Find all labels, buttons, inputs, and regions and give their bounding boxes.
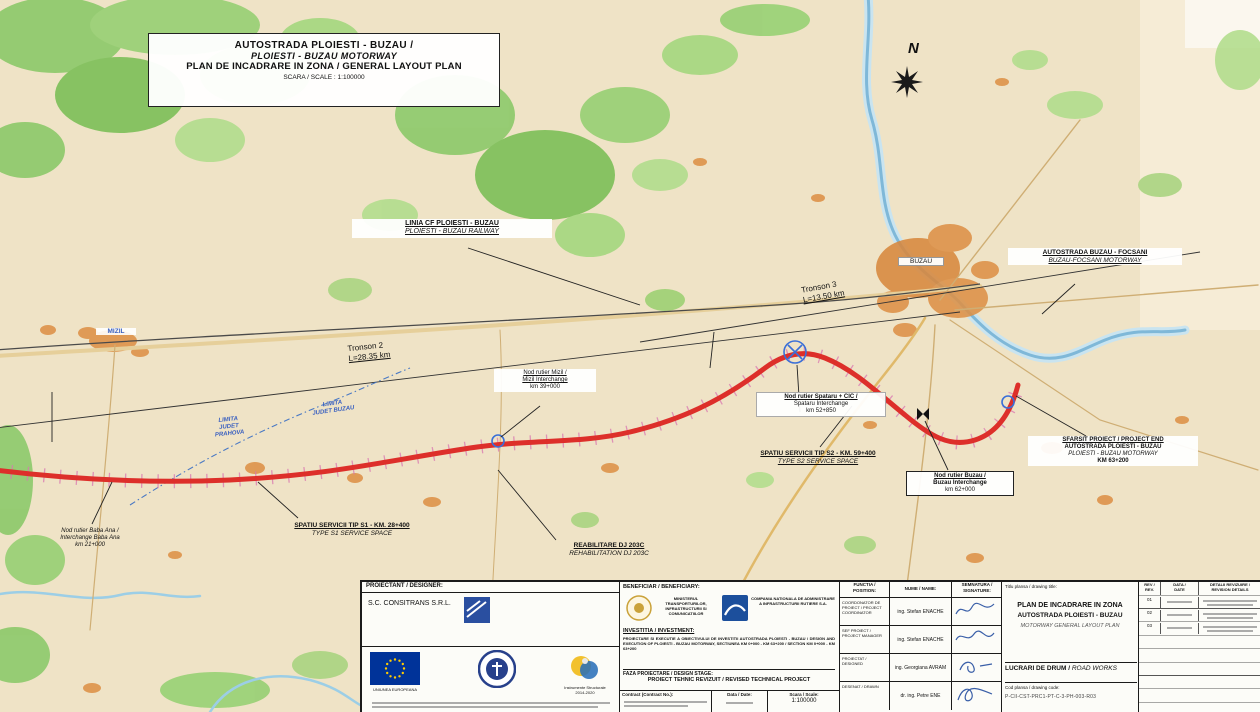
city-label-buzau: BUZAU (898, 257, 944, 266)
callout-railway-ro: LINIA CF PLOIESTI - BUZAU (354, 220, 550, 228)
eu-flag-logo (370, 652, 420, 685)
signature-column-header: SEMNATURA / SIGNATURE: (952, 582, 1002, 598)
date-cell: Data / Date: (712, 690, 768, 712)
drawing-title-line2: AUTOSTRADA PLOIESTI - BUZAU (1004, 612, 1136, 620)
scale-value: 1:100000 (768, 698, 840, 705)
callout-s2-ro: SPATIU SERVICII TIP S2 - KM. 59+400 (728, 450, 908, 458)
name-column-header: NUME / NAME: (890, 582, 952, 598)
callout-buzau-ic-en: Buzau Interchange (909, 480, 1011, 487)
road-works-ro: LUCRARI DE DRUM / (1005, 665, 1070, 672)
revision-date-illegible (1161, 623, 1199, 634)
signature-stroke (952, 654, 998, 678)
sheet-title-box: AUTOSTRADA PLOIESTI - BUZAU / PLOIESTI -… (148, 33, 500, 107)
callout-spataru-km: km 52+850 (759, 408, 883, 415)
signature-row-name: ing. Stefan ENACHE (890, 598, 952, 626)
details-header-2: REVISION DETAILS (1199, 587, 1260, 592)
beneficiary-section: BENEFICIAR / BENEFICIARY: MINISTERUL TRA… (620, 582, 840, 712)
callout-dj203c-en: REHABILITATION DJ 203C (534, 550, 684, 558)
consitrans-logo (464, 597, 490, 623)
structural-instruments-caption: Instrumente Structurale 2014-2020 (558, 685, 612, 695)
revision-table: REV / REV. DATA / DATE DETALII REVIZUIRE… (1138, 582, 1260, 712)
signature-row-position: SEF PROIECT / PROJECT MANAGER (840, 626, 890, 654)
callout-baba-ana-interchange: Nod rutier Baba Ana / Interchange Baba A… (28, 527, 152, 550)
callout-end-line2: AUTOSTRADA PLOIESTI - BUZAU (1030, 444, 1196, 451)
structural-instruments-logo (568, 652, 602, 684)
callout-s1-en: TYPE S1 SERVICE SPACE (270, 530, 434, 538)
date-column-header: DATA / DATE (1161, 582, 1199, 595)
drawing-code-value: P-CII-CST-PRC1-PT-C-3-PH-003-R03 (1005, 694, 1137, 700)
city-label-mizil: MIZIL (96, 328, 136, 335)
designer-section: PROIECTANT / DESIGNER: S.C. CONSITRANS S… (362, 582, 620, 712)
cnair-logo (722, 595, 748, 621)
signature-row-name: dr. ing. Petre ENE (890, 682, 952, 710)
illegible-microtext-line (372, 702, 610, 704)
date-label: Data / Date: (712, 691, 767, 698)
callout-buzau-ic-km: km 62+000 (909, 487, 1011, 494)
details-column-header: DETALII REVIZUIRE / REVISION DETAILS (1199, 582, 1260, 595)
callout-mizil-en: Mizil Interchange (496, 377, 594, 384)
callout-focsani-en: BUZAU-FOCSANI MOTORWAY (1010, 257, 1180, 265)
callout-dj203c: REABILITARE DJ 203C REHABILITATION DJ 20… (532, 541, 686, 558)
callout-baba-ro: Nod rutier Baba Ana / (30, 528, 150, 535)
investment-label: INVESTITIA / INVESTMENT: (623, 628, 823, 635)
date-header-2: DATE (1161, 587, 1198, 592)
sheet-title-scale: SCARA / SCALE : 1:100000 (149, 74, 499, 81)
callout-mizil-interchange: Nod rutier Mizil / Mizil Interchange km … (494, 369, 596, 392)
investment-text: PROIECTARE SI EXECUTIE A OBIECTIVULUI DE… (623, 636, 835, 666)
signature-row-signature (952, 682, 1002, 710)
revision-number: 02 (1139, 610, 1161, 621)
illegible-date-value (726, 702, 754, 704)
signature-stroke (952, 682, 998, 706)
revision-number: 01 (1139, 597, 1161, 608)
callout-end-line1: SFARSIT PROIECT / PROJECT END (1030, 437, 1196, 444)
revision-number: 03 (1139, 623, 1161, 634)
callout-baba-km: km 21+000 (30, 542, 150, 549)
signature-header-line2: SIGNATURE: (952, 588, 1002, 594)
beneficiary-header: BENEFICIAR / BENEFICIARY: (623, 584, 823, 591)
revision-date-illegible (1161, 597, 1199, 608)
romanian-government-logo (478, 650, 516, 688)
sheet-title-line3: PLAN DE INCADRARE IN ZONA / GENERAL LAYO… (149, 61, 499, 72)
scanned-map-sheet: AUTOSTRADA PLOIESTI - BUZAU / PLOIESTI -… (0, 0, 1260, 712)
position-column-header: FUNCTIA / POSITION: (840, 582, 890, 598)
callout-mizil-km: km 39+000 (496, 384, 594, 391)
signature-row-signature (952, 626, 1002, 654)
callout-spataru-interchange: Nod rutier Spataru + CIC / Spataru Inter… (756, 392, 886, 417)
cnair-text: COMPANIA NATIONALA DE ADMINISTRARE A INF… (750, 596, 836, 606)
callout-focsani-motorway: AUTOSTRADA BUZAU - FOCSANI BUZAU-FOCSANI… (1008, 248, 1182, 265)
scale-label: Scara / Scale: (768, 691, 840, 698)
section-label-tronson2: Tronson 2 L=28.35 km (347, 340, 391, 365)
signature-row-position: DESENAT / DRAWN (840, 682, 890, 710)
callout-s2-en: TYPE S2 SERVICE SPACE (728, 458, 908, 466)
callout-end-line3: PLOIESTI - BUZAU MOTORWAY (1030, 451, 1196, 458)
signature-stroke (952, 598, 998, 622)
road-works-label: LUCRARI DE DRUM / ROAD WORKS (1005, 662, 1137, 673)
designer-microtext (368, 700, 614, 710)
callout-spataru-ro: Nod rutier Spataru + CIC / (759, 394, 883, 401)
contract-label: Contract (Contract No.): (620, 691, 711, 699)
rev-header-2: REV. (1139, 587, 1160, 592)
signature-row-position: COORDONATOR DE PROIECT / PROJECT COORDIN… (840, 598, 890, 626)
transport-ministry-text: MINISTERUL TRANSPORTURILOR, INFRASTRUCTU… (654, 596, 718, 616)
design-stage-value: PROIECT TEHNIC REVIZUIT / REVISED TECHNI… (623, 677, 835, 684)
callout-service-area-s2: SPATIU SERVICII TIP S2 - KM. 59+400 TYPE… (726, 449, 910, 466)
drawing-code-label: Cod plansa / drawing code: (1005, 682, 1137, 691)
illegible-contract-value (624, 701, 707, 703)
callout-railway-en: PLOIESTI - BUZAU RAILWAY (354, 228, 550, 236)
callout-railway: LINIA CF PLOIESTI - BUZAU PLOIESTI - BUZ… (352, 219, 552, 238)
signature-row-position: PROIECTAT / DESIGNED (840, 654, 890, 682)
drawing-title-label: Titlu plansa / drawing title: (1005, 584, 1135, 590)
callout-end-km: KM 63+200 (1030, 458, 1196, 465)
transport-ministry-logo (626, 595, 652, 621)
callout-s1-ro: SPATIU SERVICII TIP S1 - KM. 28+400 (270, 522, 434, 530)
sheet-title-line2: PLOIESTI - BUZAU MOTORWAY (149, 51, 499, 61)
road-works-en: ROAD WORKS (1072, 665, 1117, 672)
callout-project-end: SFARSIT PROIECT / PROJECT END AUTOSTRADA… (1028, 436, 1198, 466)
revision-date-illegible (1161, 610, 1199, 621)
callout-baba-en: Interchange Baba Ana (30, 535, 150, 542)
illegible-contract-value (624, 705, 688, 707)
illegible-microtext-line (372, 706, 598, 708)
title-block: PROIECTANT / DESIGNER: S.C. CONSITRANS S… (360, 580, 1260, 712)
designer-divider (362, 646, 619, 647)
is-caption-line2: 2014-2020 (558, 690, 612, 695)
callout-mizil-ro: Nod rutier Mizil / (496, 370, 594, 377)
callout-service-area-s1: SPATIU SERVICII TIP S1 - KM. 28+400 TYPE… (268, 521, 436, 538)
drawing-section: Titlu plansa / drawing title: PLAN DE IN… (1002, 582, 1260, 712)
designer-header: PROIECTANT / DESIGNER: (362, 582, 619, 593)
callout-focsani-ro: AUTOSTRADA BUZAU - FOCSANI (1010, 249, 1180, 257)
signature-row-signature (952, 654, 1002, 682)
callout-buzau-interchange: Nod rutier Buzau / Buzau Interchange km … (906, 471, 1014, 496)
sheet-title-line1: AUTOSTRADA PLOIESTI - BUZAU / (149, 40, 499, 51)
callout-dj203c-ro: REABILITARE DJ 203C (534, 542, 684, 550)
revision-details-illegible (1199, 610, 1260, 621)
signatures-section: FUNCTIA / POSITION: NUME / NAME: SEMNATU… (840, 582, 1002, 712)
rev-column-header: REV / REV. (1139, 582, 1161, 595)
revision-details-illegible (1199, 597, 1260, 608)
position-header-line2: POSITION: (840, 588, 889, 594)
compass-north-label: N (908, 40, 919, 57)
callout-buzau-ic-ro: Nod rutier Buzau / (909, 473, 1011, 480)
drawing-title-line3: MOTORWAY GENERAL LAYOUT PLAN (1004, 623, 1136, 630)
signature-row-signature (952, 598, 1002, 626)
callout-spataru-en: Spataru Interchange (759, 401, 883, 408)
signature-stroke (952, 626, 998, 650)
eu-flag-caption: UNIUNEA EUROPEANA (366, 687, 424, 692)
contract-cell: Contract (Contract No.): (620, 690, 712, 712)
scale-cell: Scara / Scale: 1:100000 (768, 690, 840, 712)
drawing-title-line1: PLAN DE INCADRARE IN ZONA (1004, 602, 1136, 610)
signature-row-name: ing. Georgiana AVRAM (890, 654, 952, 682)
revision-details-illegible (1199, 623, 1260, 634)
signature-row-name: ing. Stefan ENACHE (890, 626, 952, 654)
design-stage-label: FAZA PROIECTARE / DESIGN STAGE: (623, 669, 835, 677)
